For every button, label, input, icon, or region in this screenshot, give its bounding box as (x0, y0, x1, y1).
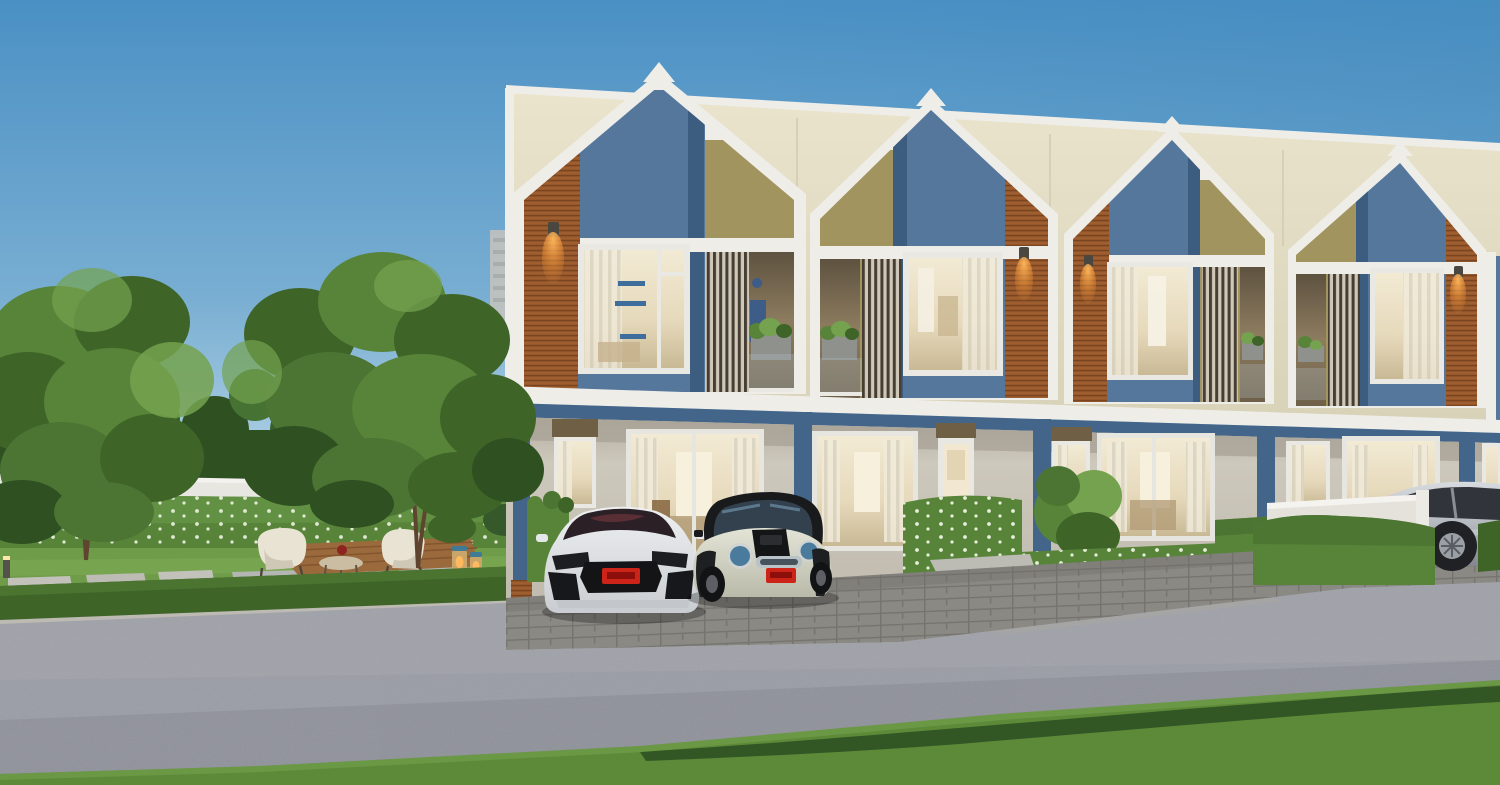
grille-slats (760, 559, 798, 565)
balcony-opening (1240, 267, 1265, 402)
upper-window (578, 244, 690, 374)
plate-text-blur (770, 572, 792, 578)
red-bowl (337, 545, 347, 555)
plate-text-blur (607, 572, 635, 579)
sconce-glow (1450, 274, 1466, 314)
mirror-left (694, 530, 703, 537)
scene-canvas (0, 0, 1500, 785)
mini-car (687, 492, 839, 609)
sconce-glow (1080, 264, 1096, 304)
side-intake-right (665, 570, 694, 599)
balcony-opening (1296, 274, 1326, 406)
upper-window (1370, 268, 1444, 384)
balcony-louvers (862, 259, 902, 398)
ground-window (1286, 441, 1330, 509)
upper-window (903, 252, 1003, 376)
transom-panel (1048, 427, 1092, 441)
balcony-louvers (1328, 274, 1360, 406)
balcony-louvers (705, 252, 749, 392)
transom-panel (936, 423, 976, 438)
mirror-left (536, 534, 548, 542)
headlight-left (730, 546, 750, 566)
transom-panel (552, 419, 598, 437)
balcony-louvers (1202, 267, 1238, 402)
upper-window (1107, 262, 1193, 380)
balcony-opening (748, 252, 794, 392)
sliding-glass-door (812, 431, 918, 551)
sconce-glow (542, 232, 564, 284)
sconce-glow (1015, 257, 1033, 301)
townhouse-unit-5-edge (1486, 252, 1500, 424)
bonnet-scoop (760, 535, 782, 545)
rendered-photo (0, 0, 1500, 785)
front-splitter (556, 600, 690, 608)
far-right-hedge (1478, 520, 1500, 572)
